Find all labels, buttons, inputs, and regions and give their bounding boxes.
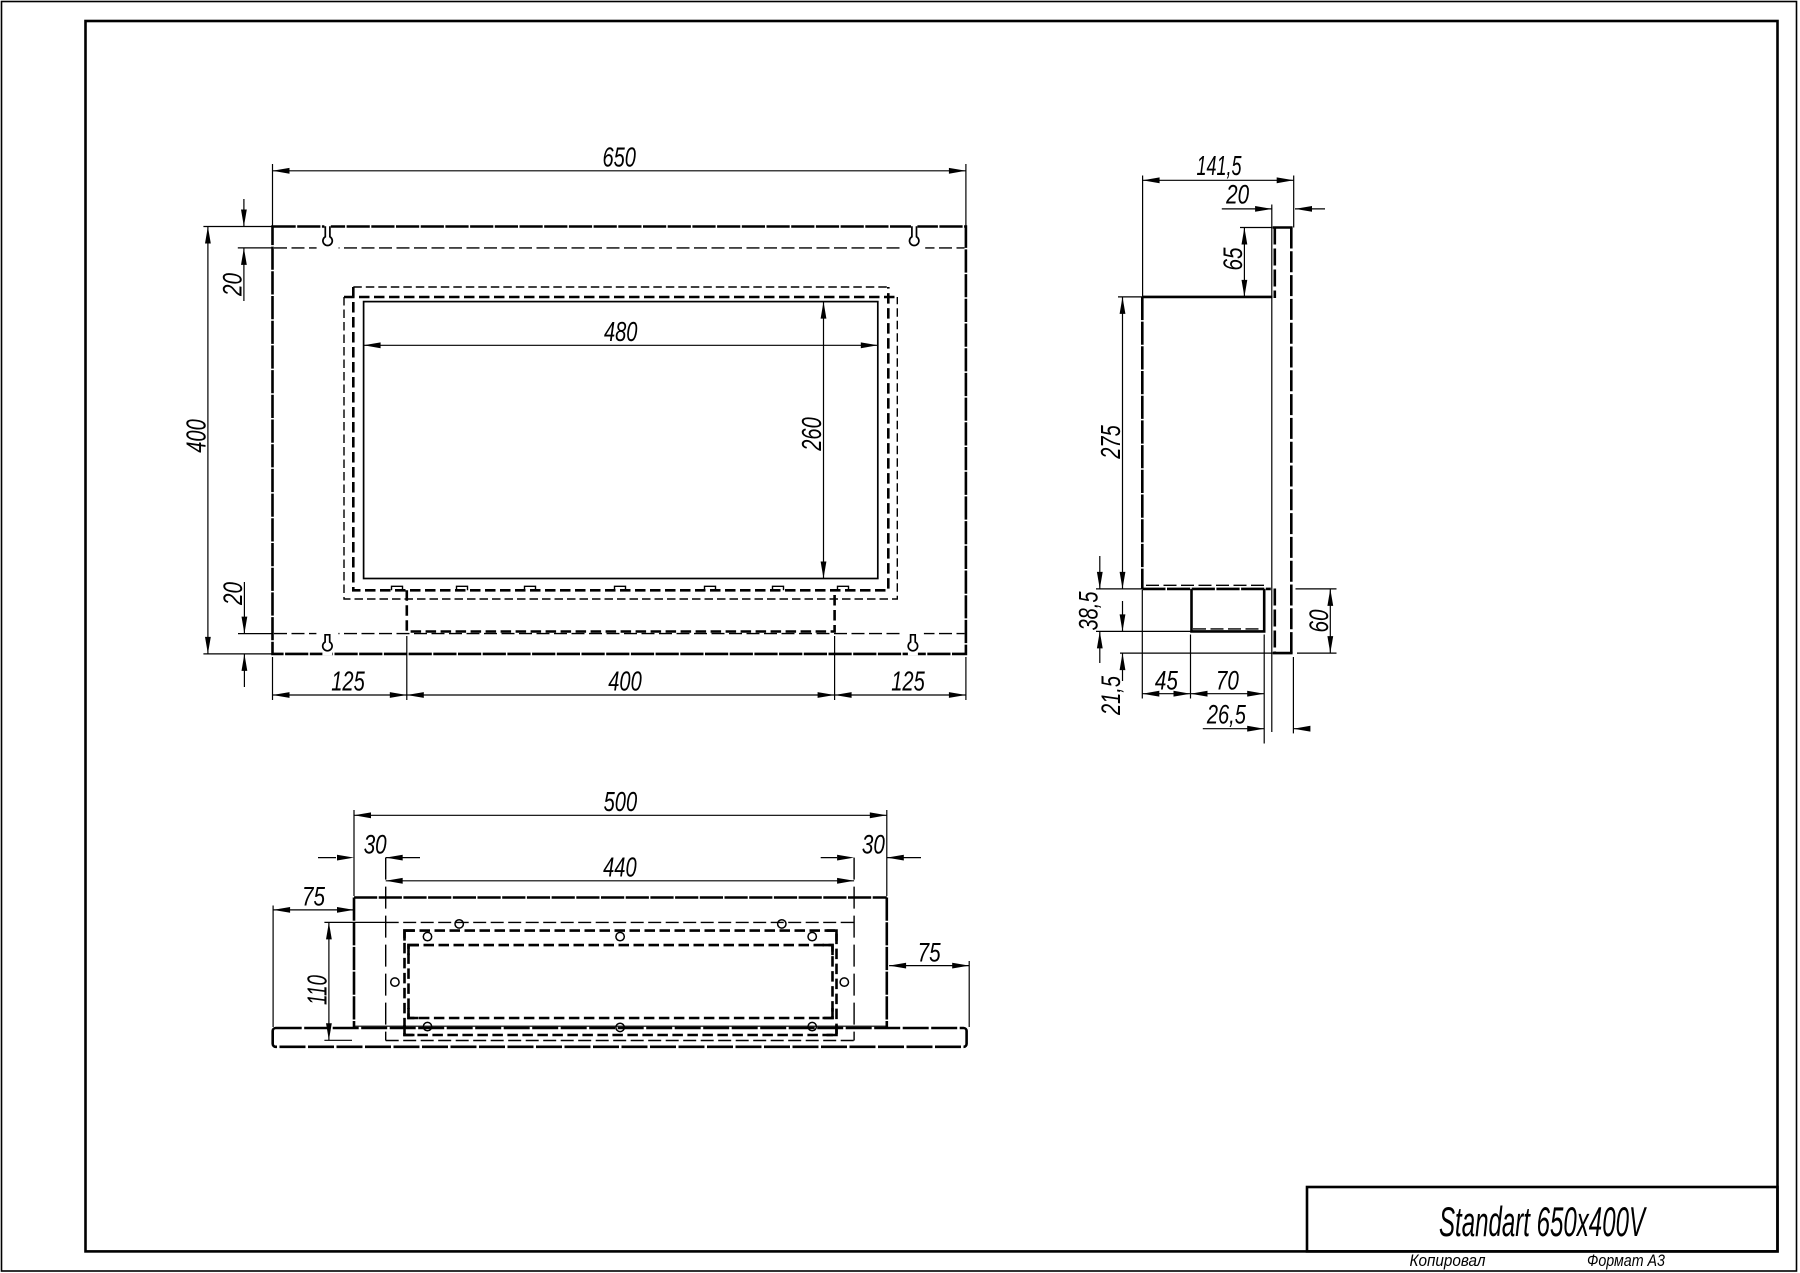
svg-text:400: 400 xyxy=(180,419,211,453)
svg-text:20: 20 xyxy=(218,582,248,606)
svg-text:125: 125 xyxy=(331,666,365,697)
svg-text:480: 480 xyxy=(604,316,638,347)
svg-text:21,5: 21,5 xyxy=(1096,675,1126,715)
svg-text:Standart 650x400V: Standart 650x400V xyxy=(1439,1198,1647,1245)
svg-text:70: 70 xyxy=(1216,666,1239,696)
svg-text:Формат А3: Формат А3 xyxy=(1587,1252,1666,1270)
svg-text:20: 20 xyxy=(1225,180,1249,210)
svg-text:20: 20 xyxy=(217,273,247,297)
svg-text:75: 75 xyxy=(302,882,326,912)
svg-text:38,5: 38,5 xyxy=(1073,591,1103,631)
svg-text:Копировал: Копировал xyxy=(1410,1252,1486,1270)
svg-text:260: 260 xyxy=(796,417,827,452)
svg-text:440: 440 xyxy=(603,852,637,883)
svg-text:110: 110 xyxy=(301,975,332,1005)
svg-text:125: 125 xyxy=(891,666,925,697)
svg-text:65: 65 xyxy=(1218,247,1248,271)
svg-text:26,5: 26,5 xyxy=(1206,700,1246,730)
svg-text:30: 30 xyxy=(364,829,387,859)
svg-text:45: 45 xyxy=(1155,666,1179,696)
svg-text:650: 650 xyxy=(602,142,636,173)
svg-text:30: 30 xyxy=(862,829,885,859)
svg-text:275: 275 xyxy=(1095,425,1126,460)
svg-text:500: 500 xyxy=(604,786,638,817)
svg-text:75: 75 xyxy=(918,937,942,967)
svg-text:400: 400 xyxy=(608,666,642,697)
svg-text:141,5: 141,5 xyxy=(1197,150,1242,181)
svg-text:60: 60 xyxy=(1304,610,1334,633)
